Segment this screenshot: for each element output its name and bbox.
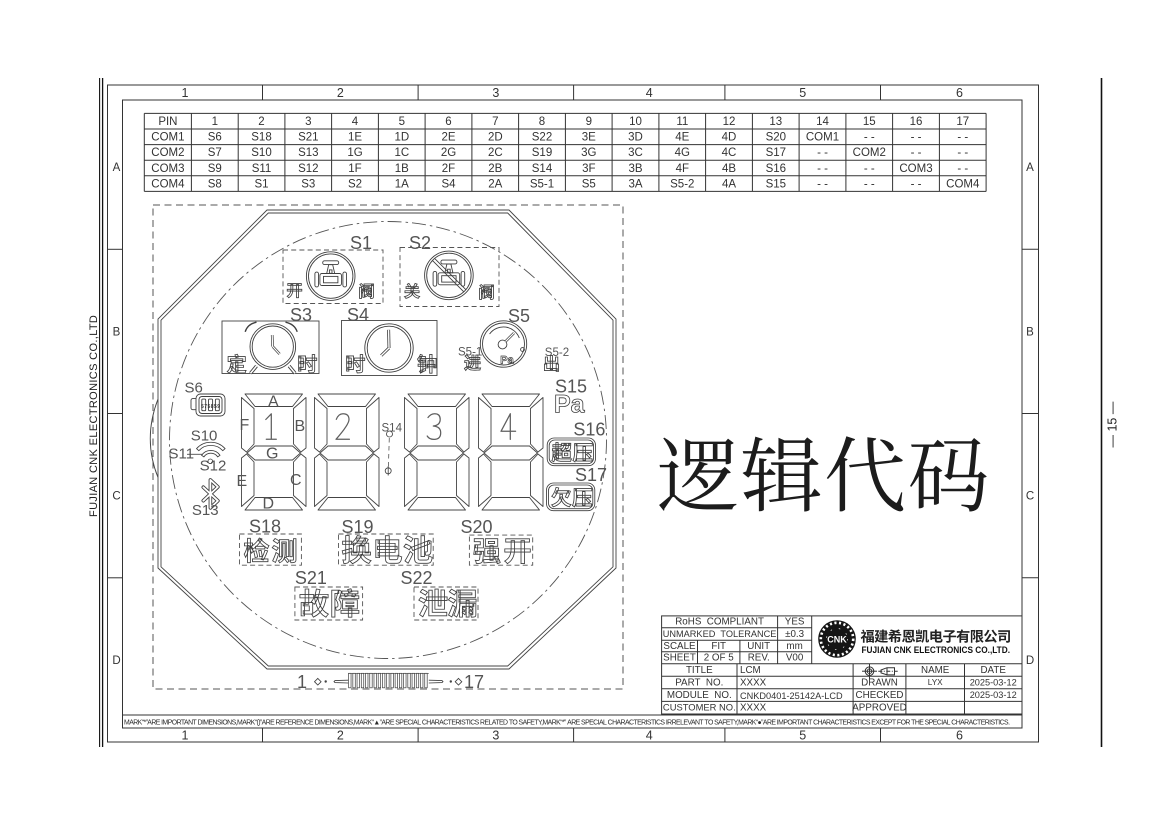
svg-text:1: 1 [297, 672, 307, 692]
svg-text:XXXX: XXXX [740, 703, 767, 714]
svg-text:COM2: COM2 [853, 147, 886, 159]
svg-text:DRAWN: DRAWN [861, 678, 898, 689]
svg-text:C: C [112, 491, 120, 503]
svg-text:4G: 4G [675, 147, 690, 159]
svg-text:1B: 1B [395, 163, 409, 175]
svg-text:S3: S3 [301, 178, 315, 190]
svg-text:S18: S18 [251, 132, 271, 144]
svg-text:3A: 3A [628, 178, 642, 190]
svg-text:16: 16 [910, 116, 923, 128]
svg-text:- -: - - [864, 178, 875, 190]
svg-text:S1: S1 [254, 178, 268, 190]
svg-text:COM1: COM1 [806, 132, 839, 144]
svg-text:10: 10 [629, 116, 642, 128]
svg-text:- -: - - [864, 163, 875, 175]
svg-text:S4: S4 [441, 178, 456, 190]
svg-text:S19: S19 [532, 147, 552, 159]
svg-text:APPROVED: APPROVED [852, 703, 906, 714]
svg-text:DATE: DATE [980, 665, 1006, 676]
svg-text:2D: 2D [488, 132, 503, 144]
svg-text:3C: 3C [628, 147, 643, 159]
svg-text:2: 2 [337, 86, 344, 100]
svg-text:COM4: COM4 [151, 178, 185, 190]
svg-text:S12: S12 [298, 163, 318, 175]
svg-text:4F: 4F [676, 163, 689, 175]
svg-text:B: B [113, 326, 121, 338]
svg-text:3: 3 [305, 116, 311, 128]
svg-text:S21: S21 [295, 568, 327, 588]
svg-text:S16: S16 [573, 420, 605, 440]
svg-text:S2: S2 [348, 178, 362, 190]
svg-text:Pa: Pa [500, 355, 514, 367]
svg-text:- -: - - [864, 132, 875, 144]
svg-text:S14: S14 [532, 163, 553, 175]
svg-text:LYX: LYX [928, 678, 943, 687]
svg-text:YES: YES [785, 617, 805, 628]
svg-text:±0.3: ±0.3 [785, 629, 805, 640]
svg-text:5: 5 [799, 729, 806, 743]
svg-text:- -: - - [957, 132, 968, 144]
svg-text:8: 8 [539, 116, 545, 128]
svg-text:S8: S8 [208, 178, 222, 190]
svg-text:COM2: COM2 [151, 147, 184, 159]
svg-text:S22: S22 [401, 568, 433, 588]
svg-text:- -: - - [957, 163, 968, 175]
svg-text:2G: 2G [441, 147, 456, 159]
svg-text:— 15 —: — 15 — [1106, 401, 1120, 447]
svg-text:15: 15 [863, 116, 876, 128]
svg-text:S17: S17 [575, 465, 607, 485]
svg-text:S12: S12 [200, 458, 227, 475]
svg-text:REV.: REV. [748, 653, 770, 664]
svg-text:3: 3 [492, 729, 499, 743]
svg-text:XXXX: XXXX [740, 678, 767, 689]
svg-text:3G: 3G [581, 147, 596, 159]
svg-text:Pa: Pa [554, 391, 586, 419]
svg-text:9: 9 [586, 116, 592, 128]
svg-text:12: 12 [723, 116, 736, 128]
svg-text:A: A [268, 394, 279, 411]
svg-text:D: D [1026, 655, 1034, 667]
svg-text:5: 5 [799, 86, 806, 100]
svg-text:MODULE NO.: MODULE NO. [667, 690, 732, 701]
svg-text:2: 2 [337, 729, 344, 743]
svg-text:2C: 2C [488, 147, 503, 159]
svg-text:- -: - - [911, 178, 922, 190]
svg-text:F: F [240, 417, 250, 434]
svg-text:RoHS COMPLIANT: RoHS COMPLIANT [675, 617, 764, 628]
svg-text:S21: S21 [298, 132, 318, 144]
svg-text:1C: 1C [394, 147, 409, 159]
svg-text:- -: - - [817, 147, 828, 159]
svg-text:UNMARKED TOLERANCE: UNMARKED TOLERANCE [663, 629, 777, 639]
svg-text:4C: 4C [722, 147, 737, 159]
svg-text:CHECKED: CHECKED [856, 690, 904, 701]
svg-text:CNKD0401-25142A-LCD: CNKD0401-25142A-LCD [740, 691, 843, 701]
svg-text:S22: S22 [532, 132, 552, 144]
svg-text:S1: S1 [350, 233, 372, 253]
svg-text:S17: S17 [766, 147, 786, 159]
svg-text:575859: 575859 [201, 404, 220, 410]
svg-text:MARK“*”ARE IMPORTANT DIMENSION: MARK“*”ARE IMPORTANT DIMENSIONS,MARK“()”… [124, 720, 1010, 727]
svg-text:S5-2: S5-2 [670, 178, 694, 190]
svg-text:1: 1 [182, 729, 189, 743]
svg-text:COM1: COM1 [151, 132, 184, 144]
svg-text:S13: S13 [298, 147, 318, 159]
svg-text:17: 17 [464, 672, 484, 692]
svg-text:6: 6 [956, 729, 963, 743]
svg-text:S13: S13 [192, 502, 219, 519]
svg-text:LCM: LCM [740, 665, 761, 676]
svg-text:2: 2 [258, 116, 264, 128]
svg-text:S5: S5 [582, 178, 596, 190]
svg-text:A: A [1026, 162, 1034, 174]
svg-text:CNK: CNK [827, 635, 847, 645]
svg-text:COM3: COM3 [899, 163, 932, 175]
svg-text:SCALE: SCALE [663, 641, 696, 652]
svg-text:3D: 3D [628, 132, 643, 144]
svg-text:- -: - - [911, 147, 922, 159]
svg-text:4A: 4A [722, 178, 736, 190]
svg-text:D: D [112, 655, 120, 667]
svg-text:2025-03-12: 2025-03-12 [970, 690, 1017, 700]
svg-text:- -: - - [817, 178, 828, 190]
svg-text:TITLE: TITLE [686, 665, 713, 676]
svg-text:4: 4 [352, 116, 359, 128]
svg-text:S20: S20 [461, 517, 493, 537]
svg-text:2 OF 5: 2 OF 5 [704, 653, 734, 664]
svg-text:- -: - - [957, 147, 968, 159]
svg-text:4: 4 [646, 729, 653, 743]
svg-text:V00: V00 [786, 653, 804, 664]
svg-text:S5: S5 [508, 306, 530, 326]
svg-text:S9: S9 [208, 163, 222, 175]
svg-text:S15: S15 [766, 178, 786, 190]
svg-text:S4: S4 [347, 305, 369, 325]
svg-text:FUJIAN CNK ELECTRONICS CO.,LTD: FUJIAN CNK ELECTRONICS CO.,LTD [88, 315, 100, 517]
svg-text:4E: 4E [675, 132, 689, 144]
svg-text:mm: mm [786, 641, 802, 652]
svg-text:17: 17 [956, 116, 969, 128]
svg-text:1D: 1D [394, 132, 409, 144]
svg-text:COM4: COM4 [946, 178, 980, 190]
svg-text:S3: S3 [290, 305, 312, 325]
svg-text:1G: 1G [347, 147, 362, 159]
svg-text:S10: S10 [251, 147, 271, 159]
svg-text:S7: S7 [208, 147, 222, 159]
svg-text:3B: 3B [628, 163, 642, 175]
svg-text:6: 6 [956, 86, 963, 100]
svg-text:14: 14 [816, 116, 829, 128]
svg-text:PIN: PIN [158, 116, 177, 128]
svg-text:- -: - - [817, 163, 828, 175]
svg-text:SHEET: SHEET [663, 653, 696, 664]
svg-text:S5-1: S5-1 [458, 347, 482, 359]
svg-text:3F: 3F [582, 163, 595, 175]
svg-text:UNIT: UNIT [747, 641, 770, 652]
svg-text:11: 11 [676, 116, 688, 128]
svg-text:C: C [1026, 491, 1034, 503]
svg-text:5: 5 [399, 116, 405, 128]
svg-text:NAME: NAME [921, 665, 950, 676]
svg-text:S20: S20 [766, 132, 786, 144]
svg-text:B: B [1026, 326, 1034, 338]
svg-text:1F: 1F [348, 163, 361, 175]
svg-text:FIT: FIT [711, 641, 726, 652]
svg-text:S16: S16 [766, 163, 786, 175]
svg-text:- -: - - [911, 132, 922, 144]
svg-text:S2: S2 [409, 233, 431, 253]
svg-text:2A: 2A [488, 178, 502, 190]
svg-text:6: 6 [445, 116, 451, 128]
svg-text:A: A [113, 162, 121, 174]
svg-text:4: 4 [646, 86, 653, 100]
svg-text:S11: S11 [252, 163, 272, 175]
svg-text:D: D [263, 496, 275, 513]
svg-text:2025-03-12: 2025-03-12 [970, 678, 1017, 688]
svg-text:S10: S10 [191, 428, 218, 445]
svg-text:3E: 3E [582, 132, 596, 144]
svg-text:COM3: COM3 [151, 163, 184, 175]
svg-text:S6: S6 [208, 132, 222, 144]
svg-text:2F: 2F [442, 163, 455, 175]
svg-text:1E: 1E [348, 132, 362, 144]
svg-text:FUJIAN CNK ELECTRONICS CO.,LTD: FUJIAN CNK ELECTRONICS CO.,LTD. [862, 645, 1011, 655]
svg-text:4B: 4B [722, 163, 736, 175]
svg-text:7: 7 [492, 116, 498, 128]
svg-text:4D: 4D [722, 132, 737, 144]
svg-text:B: B [295, 418, 306, 435]
svg-text:G: G [266, 446, 278, 463]
svg-text:2B: 2B [488, 163, 502, 175]
svg-text:S18: S18 [249, 517, 281, 537]
svg-text:PART NO.: PART NO. [675, 678, 723, 689]
svg-text:13: 13 [769, 116, 782, 128]
svg-text:1: 1 [182, 86, 189, 100]
svg-text:2E: 2E [441, 132, 455, 144]
svg-text:E: E [237, 473, 248, 490]
svg-text:3: 3 [492, 86, 499, 100]
svg-text:1: 1 [212, 116, 218, 128]
svg-text:1A: 1A [395, 178, 409, 190]
svg-text:C: C [290, 472, 302, 489]
svg-text:S5-1: S5-1 [530, 178, 554, 190]
svg-text:CUSTOMER NO.: CUSTOMER NO. [663, 702, 736, 713]
